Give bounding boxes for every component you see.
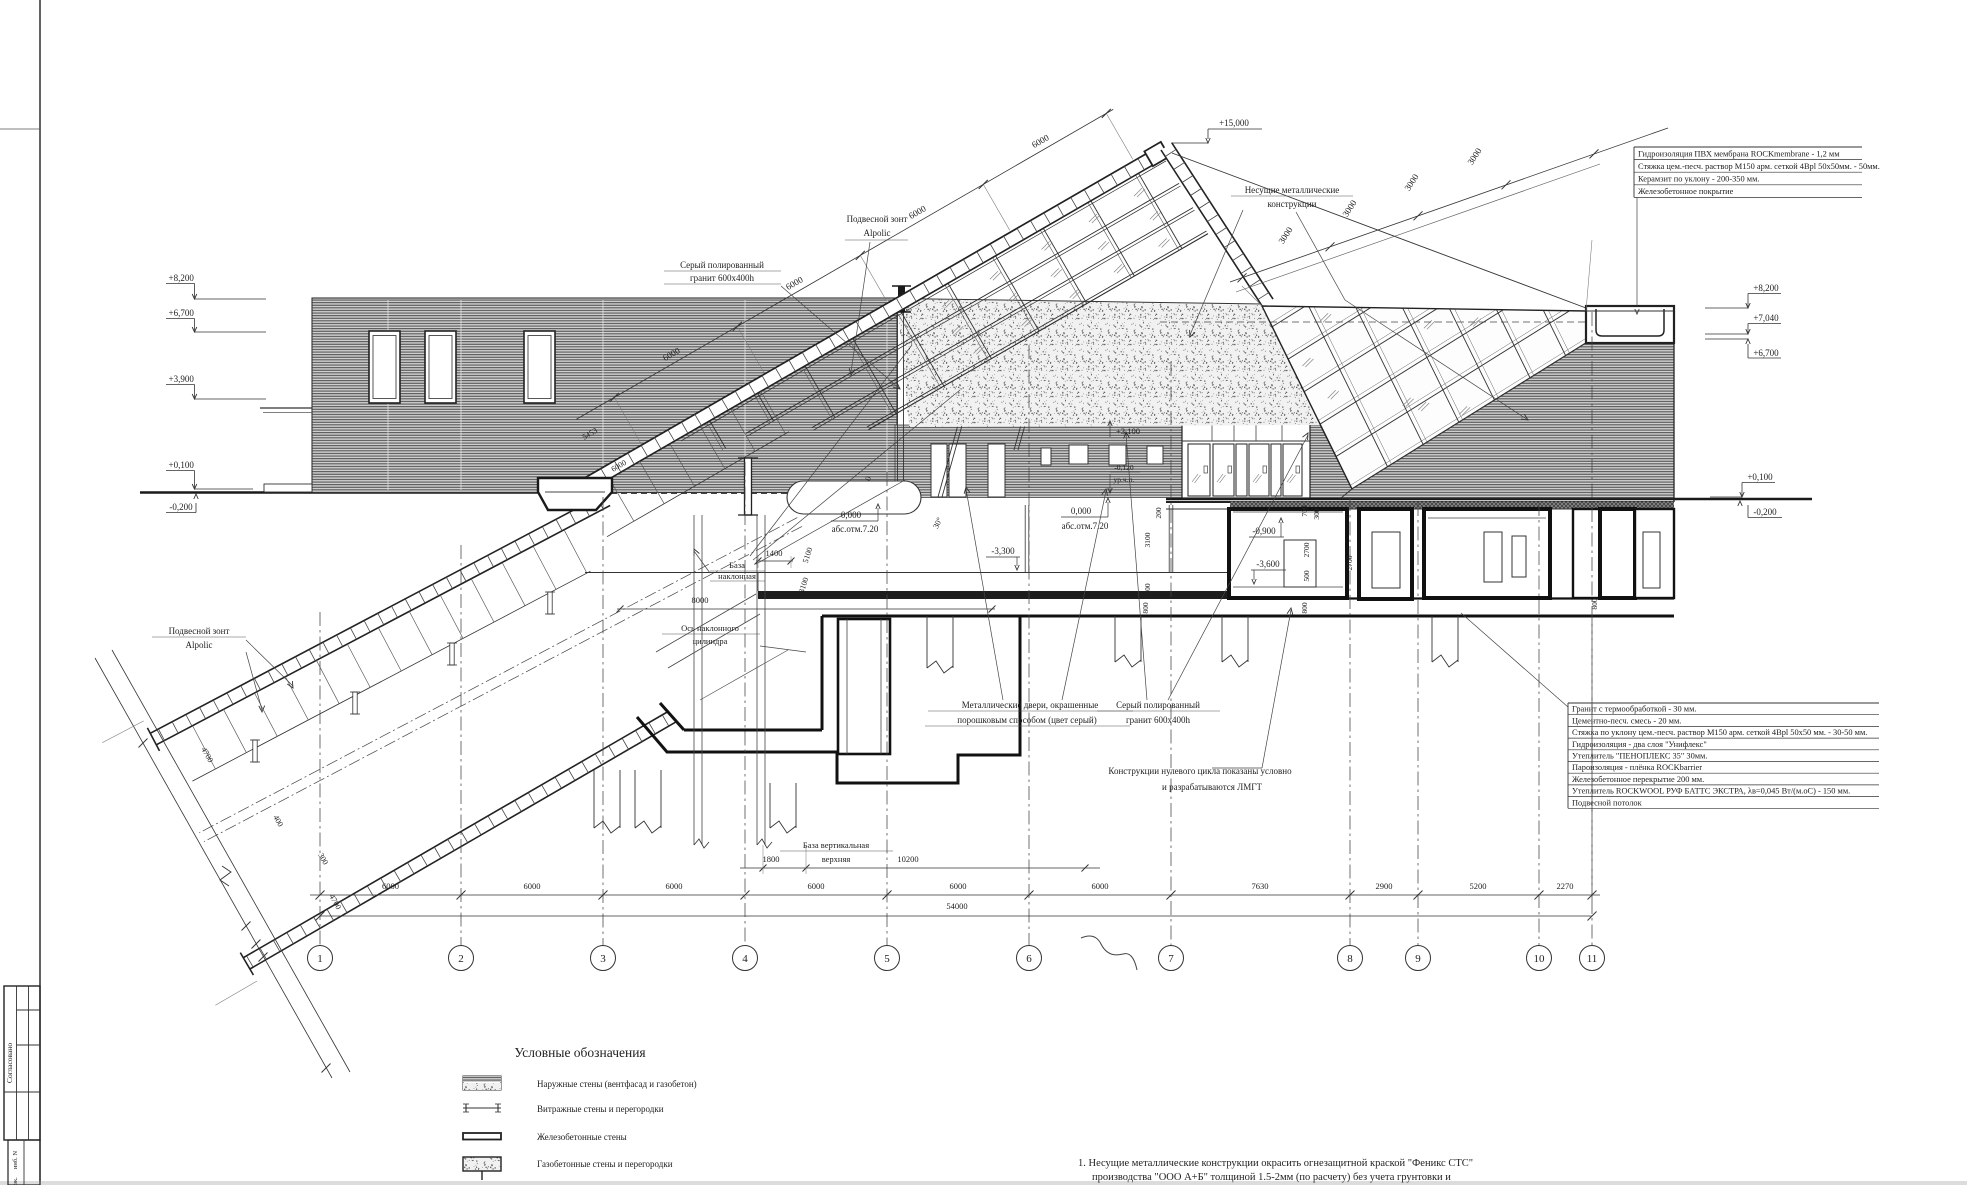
- svg-text:конструкции: конструкции: [1268, 199, 1317, 209]
- svg-text:Керамзит по уклону - 200-350 м: Керамзит по уклону - 200-350 мм.: [1638, 175, 1759, 184]
- svg-text:гранит 600x400h: гранит 600x400h: [1126, 715, 1191, 725]
- svg-text:800: 800: [1590, 598, 1599, 610]
- svg-text:производства "ООО А+Б" толщино: производства "ООО А+Б" толщиной 1.5-2мм …: [1092, 1172, 1451, 1183]
- svg-text:1400: 1400: [766, 548, 783, 558]
- svg-text:База вертикальная: База вертикальная: [803, 840, 869, 850]
- svg-text:База: База: [729, 560, 745, 570]
- svg-text:Пароизоляция - плёнка ROCKbarr: Пароизоляция - плёнка ROCKbarrier: [1572, 763, 1702, 772]
- svg-text:+8,200: +8,200: [1753, 283, 1779, 293]
- svg-text:8: 8: [1347, 953, 1353, 965]
- svg-text:6000: 6000: [808, 881, 825, 891]
- svg-text:+7,040: +7,040: [1753, 313, 1779, 323]
- svg-text:+0,100: +0,100: [1747, 472, 1773, 482]
- svg-text:Условные обозначения: Условные обозначения: [514, 1045, 645, 1060]
- svg-text:+8,200: +8,200: [169, 273, 195, 283]
- svg-text:Гидроизоляция ПВХ мембрана RO: Гидроизоляция ПВХ мембрана ROCKmembrane …: [1638, 149, 1840, 158]
- svg-text:Наружные стены (вентфасад и га: Наружные стены (вентфасад и газобетон): [537, 1079, 697, 1089]
- svg-text:3: 3: [600, 953, 606, 965]
- svg-text:Цементно-песч. смесь - 20 мм.: Цементно-песч. смесь - 20 мм.: [1572, 716, 1681, 725]
- svg-text:Подвесной потолок: Подвесной потолок: [1572, 798, 1643, 807]
- svg-text:+0,100: +0,100: [169, 460, 195, 470]
- svg-text:абс.отм.7.20: абс.отм.7.20: [832, 524, 879, 534]
- svg-text:верхняя: верхняя: [822, 854, 851, 864]
- svg-text:Подвесной зонт: Подвесной зонт: [847, 214, 908, 224]
- svg-text:Серый полированный: Серый полированный: [1116, 700, 1200, 710]
- svg-text:ур.ч.п.: ур.ч.п.: [1114, 475, 1135, 484]
- svg-text:Утеплитель ROCKWOOL РУФ БАТТС: Утеплитель ROCKWOOL РУФ БАТТС ЭКСТРА, λв…: [1572, 787, 1850, 796]
- svg-text:Гранит с термообработкой - 30: Гранит с термообработкой - 30 мм.: [1572, 705, 1696, 714]
- svg-text:6000: 6000: [666, 881, 683, 891]
- svg-text:Alpolic: Alpolic: [186, 640, 213, 650]
- svg-text:2900: 2900: [1376, 881, 1393, 891]
- svg-text:9: 9: [1415, 953, 1421, 965]
- svg-text:-0,900: -0,900: [1252, 526, 1276, 536]
- svg-text:Конструкции нулевого цикла пок: Конструкции нулевого цикла показаны усло…: [1108, 766, 1292, 776]
- svg-text:+6,700: +6,700: [169, 308, 195, 318]
- svg-text:Железобетонные стены: Железобетонные стены: [537, 1132, 627, 1142]
- svg-text:800: 800: [1141, 602, 1150, 614]
- svg-text:800: 800: [1300, 602, 1309, 614]
- svg-text:4: 4: [742, 953, 748, 965]
- svg-text:инб. N: инб. N: [12, 1151, 19, 1170]
- svg-text:6000: 6000: [1092, 881, 1109, 891]
- svg-text:800: 800: [1143, 583, 1152, 595]
- svg-text:10: 10: [1534, 953, 1546, 965]
- svg-text:6000: 6000: [382, 881, 399, 891]
- svg-text:+15,000: +15,000: [1219, 118, 1249, 128]
- svg-text:1: 1: [317, 953, 323, 965]
- svg-text:5200: 5200: [1470, 881, 1487, 891]
- svg-text:Подвесной зонт: Подвесной зонт: [169, 626, 230, 636]
- svg-text:гранит 600x400h: гранит 600x400h: [690, 273, 755, 283]
- svg-text:1800: 1800: [763, 854, 780, 864]
- svg-text:-0,200: -0,200: [1753, 507, 1777, 517]
- svg-text:Alpolic: Alpolic: [864, 228, 891, 238]
- svg-text:6000: 6000: [950, 881, 967, 891]
- svg-text:Железобетонное покрытие: Железобетонное покрытие: [1638, 187, 1734, 196]
- svg-text:абс.отм.7.20: абс.отм.7.20: [1062, 521, 1109, 531]
- svg-text:0,000: 0,000: [841, 510, 862, 520]
- svg-text:-0,120: -0,120: [1114, 463, 1134, 472]
- svg-text:Согласовано: Согласовано: [5, 1043, 14, 1083]
- svg-text:6000: 6000: [524, 881, 541, 891]
- svg-text:Витражные стены и перегородки: Витражные стены и перегородки: [537, 1104, 664, 1114]
- svg-text:10200: 10200: [897, 854, 918, 864]
- svg-text:Газобетонные стены и перегород: Газобетонные стены и перегородки: [537, 1159, 673, 1169]
- svg-text:и разрабатываются ЛМГТ: и разрабатываются ЛМГТ: [1162, 782, 1262, 792]
- svg-text:200: 200: [1154, 507, 1163, 519]
- svg-text:наклонная: наклонная: [718, 571, 756, 581]
- svg-text:-3,300: -3,300: [991, 546, 1015, 556]
- svg-text:54000: 54000: [946, 901, 967, 911]
- svg-text:3100: 3100: [1143, 532, 1152, 547]
- svg-text:порошковым способом (цвет серы: порошковым способом (цвет серый): [957, 715, 1096, 725]
- svg-text:+6,700: +6,700: [1753, 348, 1779, 358]
- svg-text:2270: 2270: [1557, 881, 1574, 891]
- svg-text:Серый полированный: Серый полированный: [680, 260, 764, 270]
- svg-text:5: 5: [884, 953, 890, 965]
- svg-text:300: 300: [1312, 508, 1321, 520]
- svg-text:Несущие металлические: Несущие металлические: [1245, 185, 1340, 195]
- svg-text:Металлические двери, окрашенны: Металлические двери, окрашенные: [962, 700, 1099, 710]
- svg-text:+3,100: +3,100: [1116, 426, 1140, 436]
- svg-text:0,000: 0,000: [1071, 506, 1092, 516]
- svg-text:+3,900: +3,900: [169, 374, 195, 384]
- svg-text:7630: 7630: [1252, 881, 1269, 891]
- svg-text:-3,600: -3,600: [1256, 559, 1280, 569]
- svg-text:-0,200: -0,200: [169, 502, 193, 512]
- svg-text:2: 2: [458, 953, 464, 965]
- svg-text:7: 7: [1168, 953, 1174, 965]
- svg-text:Стяжка цем.-песч. раствор М150: Стяжка цем.-песч. раствор М150 арм. сетк…: [1638, 162, 1880, 171]
- svg-text:цилиндра: цилиндра: [693, 636, 728, 646]
- svg-text:11: 11: [1587, 953, 1598, 965]
- svg-text:500: 500: [1302, 570, 1311, 582]
- svg-text:700: 700: [1300, 505, 1309, 517]
- svg-text:Стяжка по уклону цем.-песч. ра: Стяжка по уклону цем.-песч. раствор М150…: [1572, 728, 1867, 737]
- svg-text:2700: 2700: [1345, 555, 1354, 570]
- svg-text:1. Несущие металлические конст: 1. Несущие металлические конструкции окр…: [1078, 1158, 1473, 1169]
- svg-text:6: 6: [1026, 953, 1032, 965]
- svg-text:Ось наклонного: Ось наклонного: [681, 623, 739, 633]
- svg-text:эк.: эк.: [12, 1177, 19, 1185]
- svg-text:2700: 2700: [1302, 542, 1311, 557]
